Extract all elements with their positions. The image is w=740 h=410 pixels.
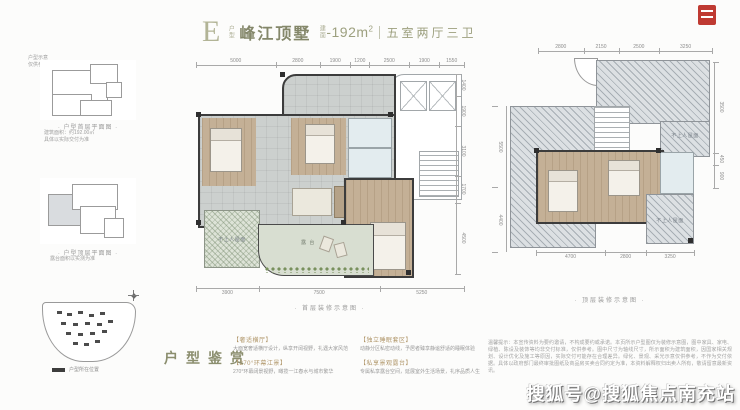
dim-label: 1900 [409, 58, 439, 64]
area-prefix: 建面 [317, 25, 324, 39]
dim-label: 1550 [439, 58, 464, 64]
arc-wall [574, 58, 598, 86]
dim-label: 2500 [369, 58, 409, 64]
dim-label: 1400 [460, 80, 466, 91]
top-floor-bathroom [660, 152, 694, 194]
plan-header: E 户型 峰江顶墅 建面 -192m2 五室两厅三卫 [202, 14, 482, 50]
staircase [594, 106, 630, 154]
dim-label: 4400 [497, 214, 503, 225]
feature-heading: 【私享景观露台】 [360, 358, 482, 367]
area-text: 建面 -192m2 [317, 24, 373, 40]
flyer-canvas: E 户型 峰江顶墅 建面 -192m2 五室两厅三卫 户型示意 仅供参考 · 户… [0, 0, 740, 410]
disclaimer-text: 温馨提示：本宣传资料为要约邀请，不构成要约或承诺。本页所示户型图仅为装修示意图，… [488, 340, 732, 375]
dim-label: 4500 [460, 233, 466, 244]
watermark: 搜狐号@搜狐焦点南充站 [526, 380, 735, 406]
dim-label: 900 [718, 172, 724, 180]
elevator-shaft [400, 81, 427, 111]
roof-area-hatch: 不上人屋面 [204, 210, 260, 268]
dim-label: 5000 [196, 58, 276, 64]
dim-label: 2150 [584, 44, 619, 50]
bed [608, 160, 640, 196]
top-floor-bedrooms [536, 150, 664, 224]
legend-swatch [52, 368, 65, 372]
thumbnail2-note: 露台面积以实测为准 [50, 256, 95, 263]
bed [370, 222, 406, 270]
top-plan-dims-bottom: 4700 2800 3250 [536, 252, 694, 264]
feature-heading: 【270°环幕江景】 [233, 358, 355, 367]
dim-label: 450 [718, 155, 724, 163]
dim-label: 1200 [350, 58, 369, 64]
compass-icon [128, 290, 139, 301]
site-plan [42, 302, 136, 362]
bathroom-2 [348, 148, 392, 178]
feature-body: 270°环幕阔景视野，瞰揽一江春水与城市繁华 [233, 369, 355, 376]
main-dims-top: 5000 2800 1900 1200 2500 1900 1550 [196, 52, 464, 65]
dim-label: 2800 [538, 44, 584, 50]
terrace-plants [265, 267, 369, 273]
main-dims-bottom: 3900 7500 5250 [196, 288, 464, 300]
dim-label: 2800 [276, 58, 321, 64]
appreciation-col-1: 【奢适横厅】 大面宽奢适横厅设计，纵享开阔视野，礼遇大家风范 【270°环幕江景… [233, 335, 355, 381]
thumbnail1-notes: 建筑面积：约192.00㎡ 具体以实际交付为准 [44, 130, 94, 144]
dim-label: 1700 [460, 184, 466, 195]
first-floor-caption: · 首层装修示意图 · [196, 303, 464, 312]
feature-heading: 【独立睡眠套区】 [360, 335, 482, 344]
roof-hatch-bottom-right: 不上人屋面 [646, 194, 694, 244]
top-plan-dims-top: 2800 2150 2500 3250 [538, 38, 712, 51]
first-floor-plan: 不上人屋面 露 台 [196, 70, 464, 276]
room-layout: 五室两厅三卫 [386, 24, 476, 41]
dim-label: 3250 [646, 254, 694, 260]
elevator-shaft [429, 81, 456, 111]
dim-label: 3250 [659, 44, 712, 50]
legend-label: 户型所在位置 [69, 366, 99, 373]
plan-name: 峰江顶墅 [239, 20, 311, 44]
type-letter: E [202, 17, 220, 47]
dim-label: 3100 [460, 145, 466, 156]
top-plan-dims-left: 5500 4400 [494, 106, 506, 252]
top-floor-plan: 不上人屋面 不上人屋面 不上人屋面 [508, 58, 712, 258]
appreciation-col-2: 【独立睡眠套区】 动静分区私密动线，予居者臻享静谧舒适的睡眠体验 【私享景观露台… [360, 335, 482, 381]
feature-heading: 【奢适横厅】 [233, 335, 355, 344]
dim-label: 2500 [619, 44, 660, 50]
bedroom-1 [202, 118, 256, 186]
feature-body: 专属私享露台空间，延展室外生活场景，礼序品质人生 [360, 369, 482, 376]
lounge-chair [333, 242, 347, 258]
feature-body: 大面宽奢适横厅设计，纵享开阔视野，礼遇大家风范 [233, 346, 355, 353]
top-floor-caption: · 顶层装修示意图 · [508, 295, 712, 304]
dim-label: 1900 [460, 106, 466, 117]
terrace: 露 台 [258, 224, 374, 276]
feature-body: 动静分区私密动线，予居者臻享静谧舒适的睡眠体验 [360, 346, 482, 353]
dim-label: 2800 [605, 254, 646, 260]
main-dims-right: 1400 1900 3100 1700 4500 [456, 74, 468, 274]
dim-label: 5500 [497, 141, 503, 152]
top-plan-dims-right: 3500 450 900 [714, 62, 726, 188]
bed [548, 170, 578, 212]
dim-label: 7500 [259, 290, 380, 296]
dim-label: 5250 [380, 290, 465, 296]
site-buildings [57, 311, 62, 314]
header-divider [379, 26, 380, 39]
red-seal-icon [698, 5, 716, 25]
sofa [292, 188, 332, 216]
bed [210, 128, 242, 172]
bathroom-1 [348, 118, 392, 148]
dim-label: 1900 [320, 58, 350, 64]
dim-label: 3500 [718, 102, 724, 113]
bed [305, 124, 335, 164]
thumbnail-first-floor-plan [40, 60, 136, 120]
area-value: -192m2 [326, 24, 373, 40]
bedroom-2 [291, 118, 346, 175]
dim-label: 4700 [536, 254, 605, 260]
staircase [419, 151, 459, 197]
type-suffix: 户型 [226, 25, 233, 39]
lounge-chair [319, 236, 334, 253]
dim-label: 3900 [196, 290, 259, 296]
thumbnail-top-floor-plan [40, 178, 136, 244]
